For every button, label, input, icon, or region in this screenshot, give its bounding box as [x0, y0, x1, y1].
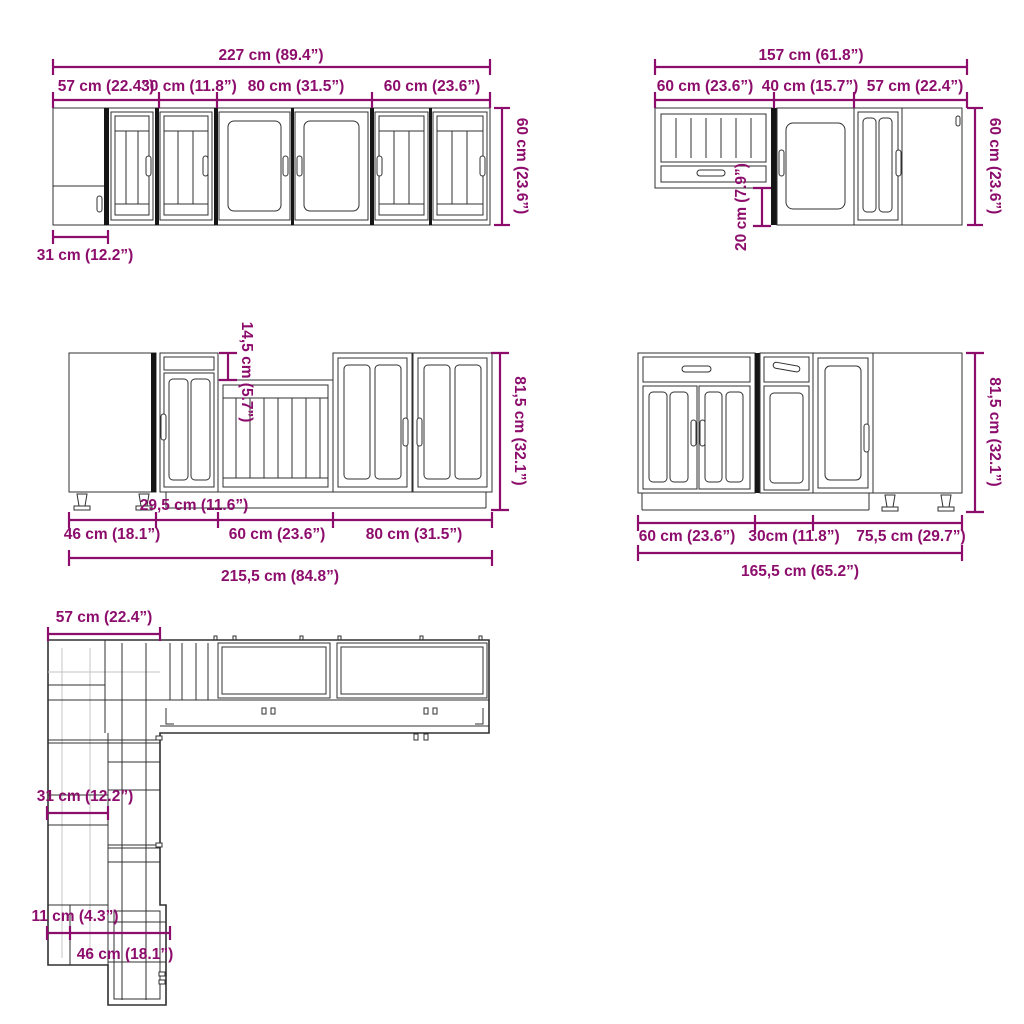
dim-label-segment: 40 cm (15.7”) — [762, 78, 859, 95]
dim-label-segment: 80 cm (31.5”) — [248, 78, 345, 95]
wall-cabinet-run-left-drawing — [53, 108, 490, 225]
dim-label-height: 60 cm (23.6”) — [986, 118, 1003, 215]
wall-cabinet-run-right-drawing — [655, 108, 962, 225]
dim-label-recess-drop: 14,5 cm (5.7”) — [238, 322, 255, 423]
dim-label-overall-width: 157 cm (61.8”) — [758, 47, 863, 64]
dim-label-bottom-width: 46 cm (18.1”) — [77, 946, 174, 963]
dimension-diagram-canvas: 227 cm (89.4”) 57 cm (22.4”) 30 cm (11.8… — [0, 0, 1024, 1024]
base-run-right-dimensions: 81,5 cm (32.1”) 60 cm (23.6”) 30cm (11.8… — [638, 353, 1003, 580]
dim-label-height: 81,5 cm (32.1”) — [511, 376, 528, 485]
dim-label-recess-width: 29,5 cm (11.6”) — [140, 497, 249, 514]
dim-label-top-width: 57 cm (22.4”) — [56, 609, 153, 626]
plan-view-dimensions: 57 cm (22.4”) 31 cm (12.2”) 11 cm (4.3”)… — [31, 609, 173, 963]
dim-label-segment: 60 cm (23.6”) — [229, 526, 326, 543]
dim-label-overall-width: 165,5 cm (65.2”) — [741, 563, 859, 580]
dim-label-segment: 30 cm (11.8”) — [141, 78, 237, 95]
dim-label-segment: 46 cm (18.1”) — [64, 526, 161, 543]
base-run-left-dimensions: 14,5 cm (5.7”) 81,5 cm (32.1”) 29,5 cm (… — [64, 322, 528, 585]
dim-label-height: 81,5 cm (32.1”) — [986, 377, 1003, 486]
dim-label-segment: 60 cm (23.6”) — [639, 528, 736, 545]
adjustable-foot — [882, 495, 898, 511]
wall-run-right-dimensions: 157 cm (61.8”) 60 cm (23.6”) 40 cm (15.7… — [655, 47, 1003, 251]
dim-label-depth: 31 cm (12.2”) — [37, 247, 134, 264]
dim-label-height: 60 cm (23.6”) — [513, 118, 530, 215]
dim-label-segment: 60 cm (23.6”) — [657, 78, 754, 95]
dim-label-segment: 30cm (11.8”) — [748, 528, 839, 545]
dim-label-overall-width: 215,5 cm (84.8”) — [221, 568, 339, 585]
kitchen-cabinet-dimension-sheet: 227 cm (89.4”) 57 cm (22.4”) 30 cm (11.8… — [0, 0, 1024, 1024]
dim-label-segment: 57 cm (22.4”) — [867, 78, 964, 95]
dim-label-segment: 60 cm (23.6”) — [384, 78, 481, 95]
dim-label-left-depth: 31 cm (12.2”) — [37, 788, 134, 805]
dim-label-segment: 80 cm (31.5”) — [366, 526, 463, 543]
dim-label-drop: 20 cm (7.9”) — [733, 163, 750, 251]
adjustable-foot — [74, 494, 90, 510]
dim-label-segment: 57 cm (22.4”) — [58, 78, 155, 95]
base-cabinet-run-left-drawing — [69, 353, 492, 510]
dim-label-segment: 75,5 cm (29.7”) — [856, 528, 965, 545]
adjustable-foot — [938, 495, 954, 511]
dim-label-filler-width: 11 cm (4.3”) — [31, 908, 118, 925]
base-cabinet-run-right-drawing — [638, 353, 962, 511]
dim-label-overall-width: 227 cm (89.4”) — [218, 47, 323, 64]
